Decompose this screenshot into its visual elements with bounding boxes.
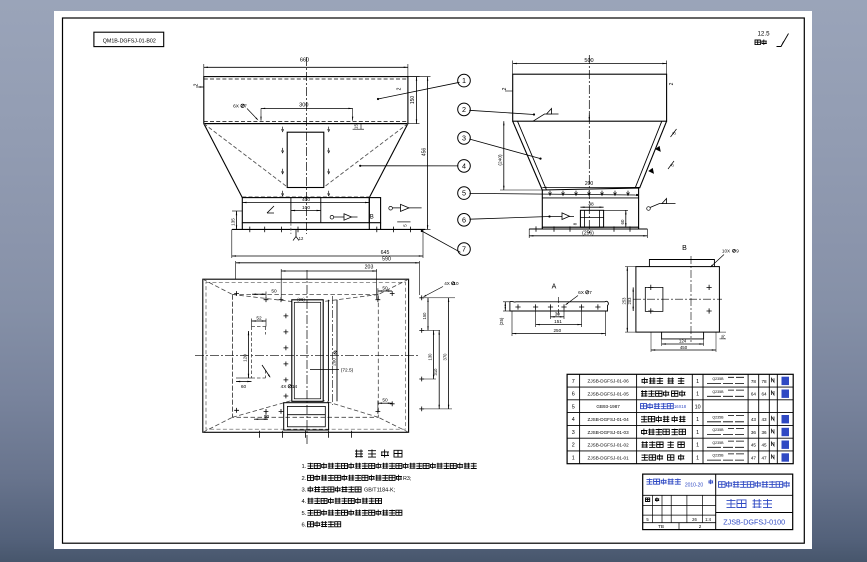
svg-text:6: 6 [572,392,575,398]
svg-text:36: 36 [761,430,767,435]
svg-text:ZJSB-DGFSJ-0100: ZJSB-DGFSJ-0100 [723,518,785,527]
svg-text:1: 1 [696,456,699,462]
svg-text:7: 7 [572,379,575,385]
svg-text:1: 1 [696,379,699,385]
svg-text:47: 47 [751,456,757,461]
svg-text:45: 45 [751,443,757,448]
svg-text:TB: TB [658,524,664,529]
svg-text:Q235B: Q235B [712,377,724,381]
svg-text:16X18: 16X18 [674,404,687,409]
svg-text:Q235B: Q235B [712,428,724,432]
svg-text:3: 3 [572,430,575,436]
svg-text:1: 1 [696,430,699,436]
svg-text:43: 43 [751,417,757,422]
svg-text:1:4: 1:4 [705,517,711,522]
svg-text:ZJSB-DGFSJ-01-04: ZJSB-DGFSJ-01-04 [588,417,630,422]
svg-text:4: 4 [572,417,575,423]
svg-text:1: 1 [696,417,699,423]
svg-text:1.: 1. [302,464,307,470]
svg-text:36: 36 [751,430,757,435]
svg-text:1: 1 [572,456,575,462]
svg-text:ZJSB-DGFSJ-01-06: ZJSB-DGFSJ-01-06 [588,379,630,384]
svg-text:Q235B: Q235B [712,390,724,394]
svg-text:10: 10 [695,404,701,410]
svg-text:78: 78 [761,379,767,384]
svg-text:3.: 3. [302,488,307,494]
svg-text:5: 5 [572,404,575,410]
svg-text:64: 64 [751,392,757,397]
svg-text:Q235B: Q235B [712,415,724,419]
svg-text:5: 5 [646,517,649,522]
svg-text:5.: 5. [302,511,307,517]
svg-text:43: 43 [761,417,767,422]
svg-text:GB93-1987: GB93-1987 [596,404,620,409]
svg-text:4.: 4. [302,499,307,505]
svg-text:ZJSB-DGFSJ-01-01: ZJSB-DGFSJ-01-01 [588,455,630,460]
svg-text:6.: 6. [302,522,307,528]
svg-text:2010-20: 2010-20 [685,483,704,489]
svg-text:64: 64 [761,392,767,397]
svg-text:47: 47 [761,456,767,461]
svg-text:78: 78 [751,379,757,384]
svg-text:1: 1 [696,443,699,449]
svg-text:ZJSB-DGFSJ-01-02: ZJSB-DGFSJ-01-02 [588,443,630,448]
svg-text:ZJSB-DGFSJ-01-03: ZJSB-DGFSJ-01-03 [588,430,630,435]
svg-text:26: 26 [692,517,697,522]
svg-text:45: 45 [761,443,767,448]
svg-text:1: 1 [696,392,699,398]
svg-text:2.: 2. [302,476,307,482]
svg-text:Q235B: Q235B [712,454,724,458]
svg-text:2: 2 [699,524,702,529]
svg-text:ZJSB-DGFSJ-01-05: ZJSB-DGFSJ-01-05 [588,391,630,396]
svg-text:2: 2 [572,443,575,449]
svg-text:R3;: R3; [403,476,412,482]
svg-text:GB/T1184-K;: GB/T1184-K; [364,488,396,494]
svg-text:Q235B: Q235B [712,441,724,445]
